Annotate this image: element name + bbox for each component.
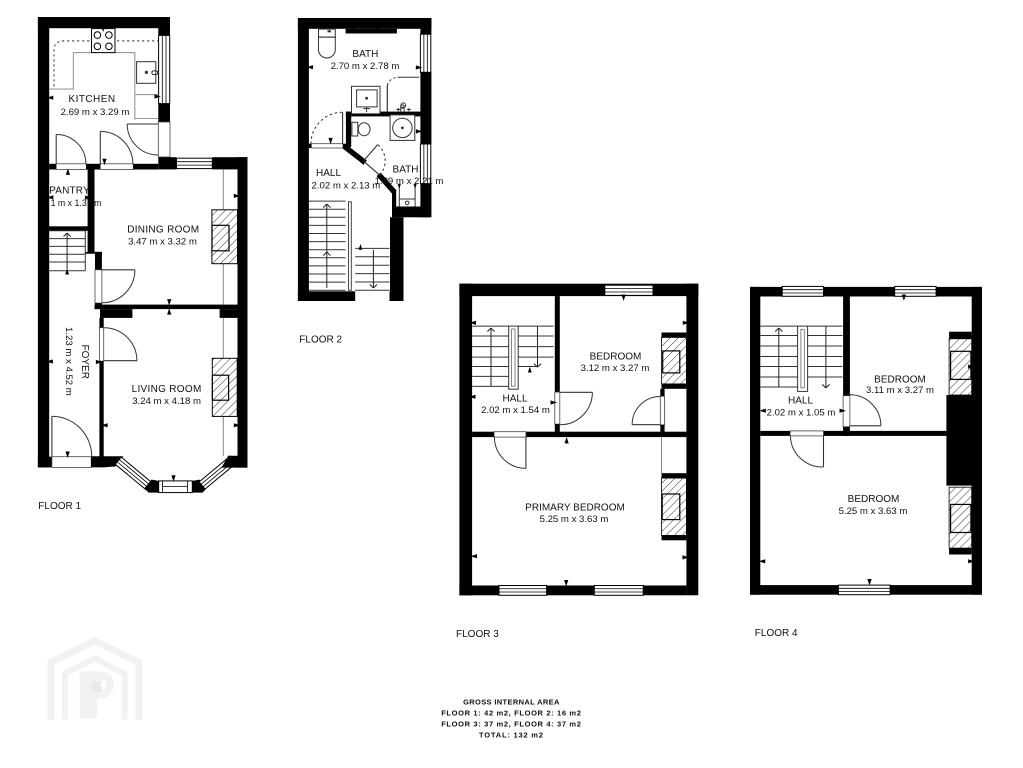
svg-text:3.24 m x 4.18 m: 3.24 m x 4.18 m xyxy=(132,396,201,407)
svg-text:TOTAL: 132 m2: TOTAL: 132 m2 xyxy=(479,731,544,740)
svg-text:1.23 m x 4.52 m: 1.23 m x 4.52 m xyxy=(63,327,74,396)
svg-text:LIVING ROOM: LIVING ROOM xyxy=(132,384,202,395)
svg-text:2.70 m x 2.78 m: 2.70 m x 2.78 m xyxy=(331,61,400,72)
svg-text:FLOOR 1: 42 m2, FLOOR 2: 16 m2: FLOOR 1: 42 m2, FLOOR 2: 16 m2 xyxy=(441,709,581,718)
svg-text:GROSS INTERNAL AREA: GROSS INTERNAL AREA xyxy=(463,698,560,707)
svg-text:2.69 m x 3.29 m: 2.69 m x 3.29 m xyxy=(61,107,130,118)
svg-text:DINING ROOM: DINING ROOM xyxy=(127,225,199,236)
svg-text:3.12 m x 3.27 m: 3.12 m x 3.27 m xyxy=(581,363,650,374)
svg-text:FLOOR 1: FLOOR 1 xyxy=(38,501,81,512)
svg-text:FLOOR 2: FLOOR 2 xyxy=(299,335,342,346)
svg-text:3.47 m x 3.32 m: 3.47 m x 3.32 m xyxy=(128,237,197,248)
svg-text:1.89 m x 2.21 m: 1.89 m x 2.21 m xyxy=(375,176,444,187)
svg-text:HALL: HALL xyxy=(316,168,341,179)
svg-text:FOYER: FOYER xyxy=(79,344,90,378)
svg-text:FLOOR 3: 37 m2, FLOOR 4: 37 m2: FLOOR 3: 37 m2, FLOOR 4: 37 m2 xyxy=(441,720,581,729)
svg-text:HALL: HALL xyxy=(788,396,813,407)
svg-text:BEDROOM: BEDROOM xyxy=(848,494,900,505)
svg-text:FLOOR 4: FLOOR 4 xyxy=(755,628,798,639)
svg-text:PANTRY: PANTRY xyxy=(49,186,90,197)
svg-text:1 m x 1.37 m: 1 m x 1.37 m xyxy=(51,198,102,208)
svg-text:2.02 m x 1.05 m: 2.02 m x 1.05 m xyxy=(767,408,836,419)
svg-text:BATH: BATH xyxy=(393,164,419,175)
svg-text:5.25 m x 3.63 m: 5.25 m x 3.63 m xyxy=(540,514,609,525)
svg-text:BEDROOM: BEDROOM xyxy=(590,351,642,362)
svg-text:2.02 m x 2.13 m: 2.02 m x 2.13 m xyxy=(312,181,381,192)
svg-text:FLOOR 3: FLOOR 3 xyxy=(456,629,499,640)
svg-text:3.11 m x 3.27 m: 3.11 m x 3.27 m xyxy=(866,385,934,396)
svg-text:BATH: BATH xyxy=(352,49,378,60)
svg-text:2.02 m x 1.54 m: 2.02 m x 1.54 m xyxy=(481,405,550,416)
svg-text:PRIMARY BEDROOM: PRIMARY BEDROOM xyxy=(525,502,625,513)
svg-text:KITCHEN: KITCHEN xyxy=(68,94,115,105)
svg-text:5.25 m x 3.63 m: 5.25 m x 3.63 m xyxy=(839,506,908,517)
svg-text:HALL: HALL xyxy=(502,394,527,405)
svg-text:BEDROOM: BEDROOM xyxy=(874,375,926,386)
